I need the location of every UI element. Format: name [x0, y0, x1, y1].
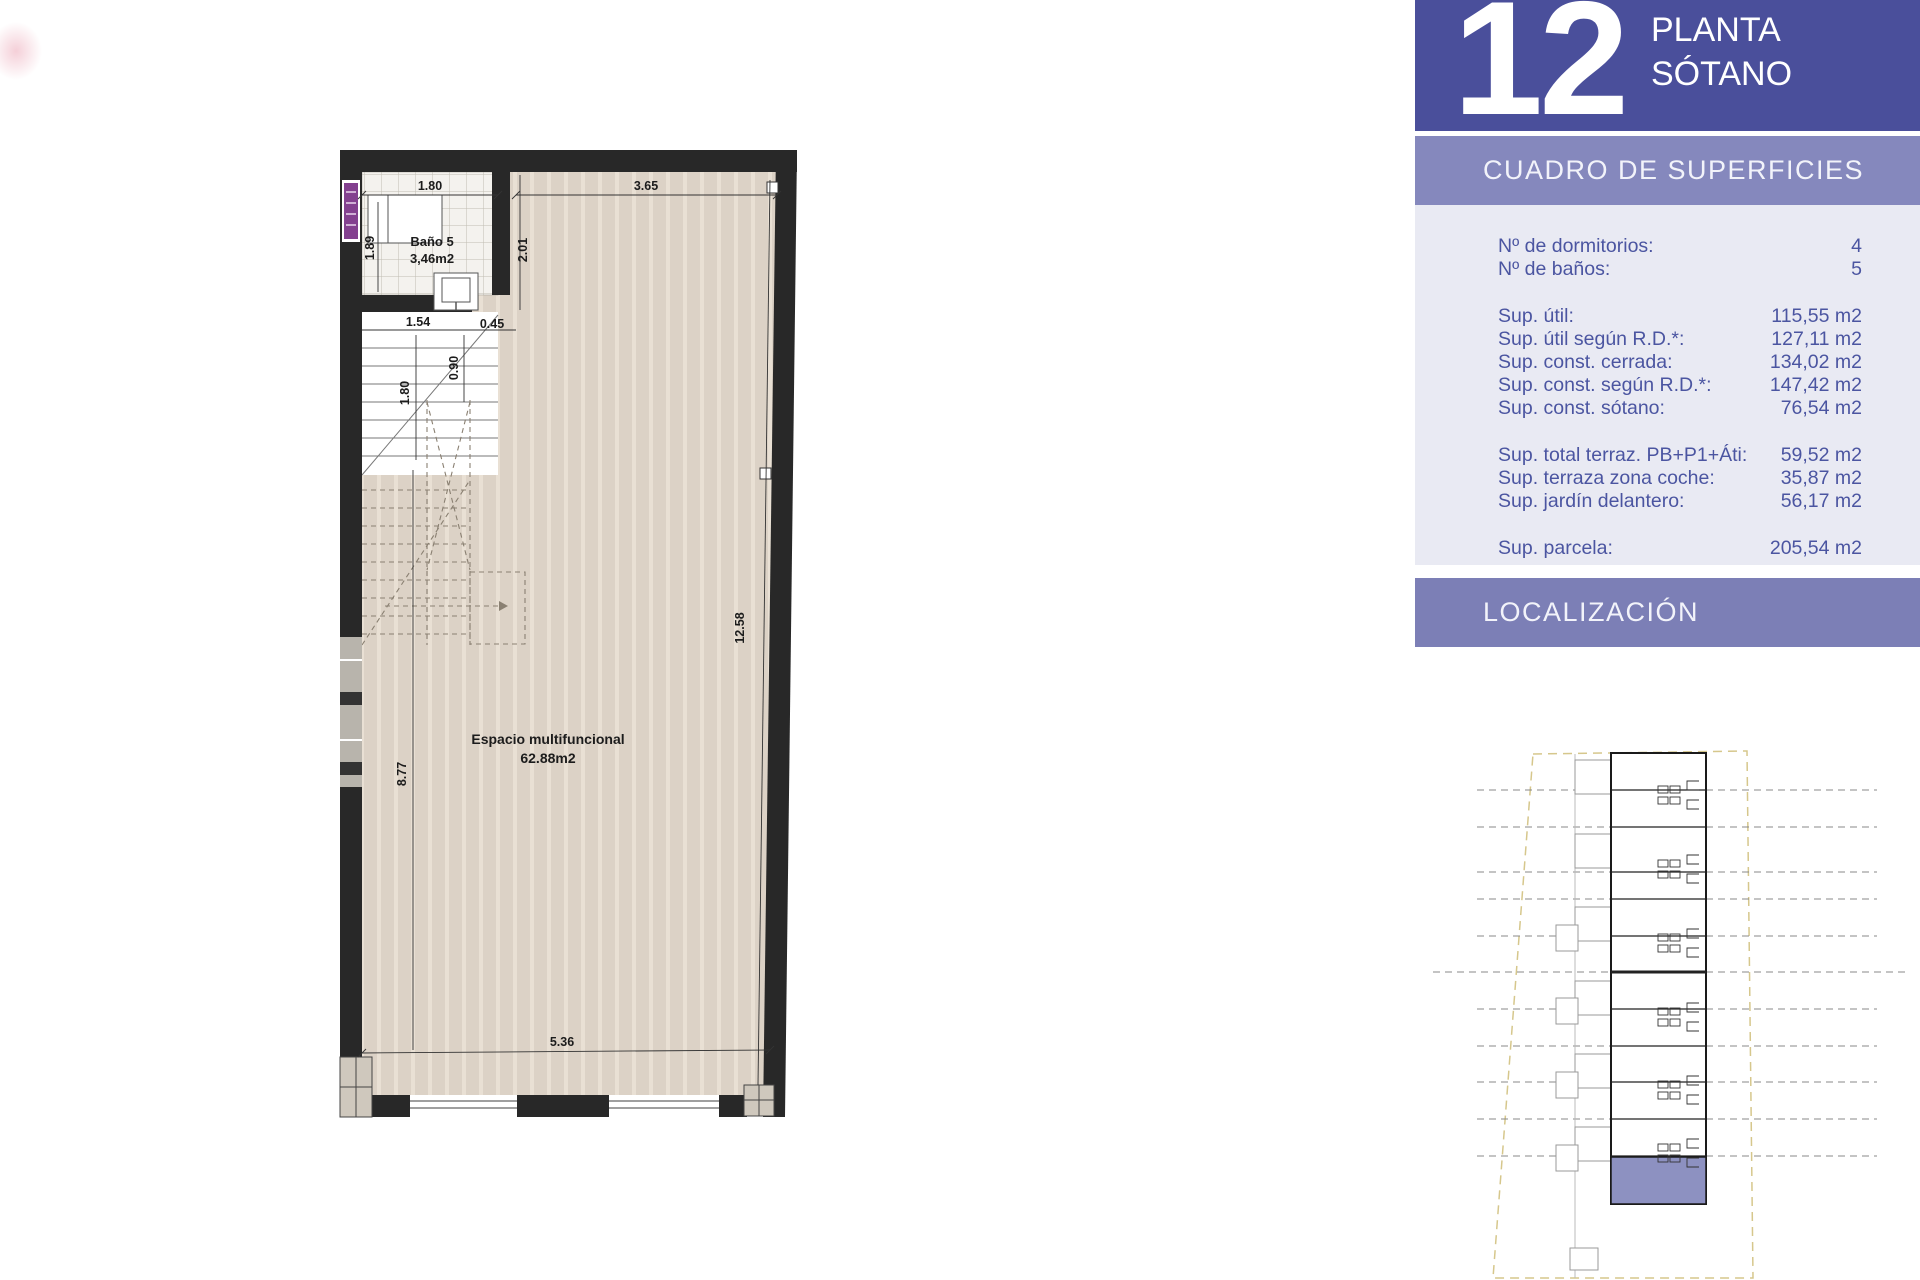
floor-name-line1: PLANTA [1651, 8, 1792, 52]
location-diagram [1415, 648, 1920, 1280]
table-row: Sup. parcela: 205,54 m2 [1498, 537, 1862, 560]
row-label: Sup. terraza zona coche: [1498, 467, 1715, 490]
table-row: Sup. terraza zona coche: 35,87 m2 [1498, 467, 1862, 490]
bathroom-area: 3,46m2 [410, 251, 454, 266]
row-label: Nº de baños: [1498, 258, 1610, 281]
porch-outlines [1556, 754, 1611, 1278]
dim-below-bath-right: 0.45 [480, 317, 504, 331]
localization-title: LOCALIZACIÓN [1483, 597, 1699, 628]
dim-stair-width: 0.90 [447, 356, 461, 380]
row-label: Sup. const. según R.D.*: [1498, 374, 1712, 397]
bathroom-name: Baño 5 [410, 234, 453, 249]
row-label: Sup. total terraz. PB+P1+Áti: [1498, 444, 1747, 467]
row-value: 134,02 m2 [1770, 351, 1862, 374]
row-label: Sup. const. cerrada: [1498, 351, 1673, 374]
highlighted-unit [1611, 1157, 1706, 1204]
table-row: Sup. const. cerrada: 134,02 m2 [1498, 351, 1862, 374]
surfaces-title: CUADRO DE SUPERFICIES [1483, 155, 1864, 186]
row-label: Sup. parcela: [1498, 537, 1613, 560]
row-label: Sup. útil según R.D.*: [1498, 328, 1684, 351]
row-value: 76,54 m2 [1781, 397, 1862, 420]
row-label: Sup. const. sótano: [1498, 397, 1665, 420]
row-value: 59,52 m2 [1781, 444, 1862, 467]
row-value: 205,54 m2 [1770, 537, 1862, 560]
door-marker [342, 180, 360, 242]
dim-left-height: 8.77 [395, 762, 409, 786]
row-value: 4 [1851, 235, 1862, 258]
localization-title-band: LOCALIZACIÓN [1415, 578, 1920, 647]
table-row: Nº de dormitorios: 4 [1498, 235, 1862, 258]
dim-top-left: 1.80 [418, 179, 442, 193]
unit-number: 12 [1453, 0, 1625, 152]
dim-bath-right: 2.01 [516, 238, 530, 262]
dim-bottom-width: 5.36 [550, 1035, 574, 1049]
row-label: Sup. útil: [1498, 305, 1574, 328]
dim-top-right: 3.65 [634, 179, 658, 193]
dim-stair-left: 1.80 [398, 381, 412, 405]
unit-header: 12 PLANTA SÓTANO [1415, 0, 1920, 131]
building-block [1611, 753, 1706, 1204]
floor-name-line2: SÓTANO [1651, 52, 1792, 96]
row-value: 115,55 m2 [1771, 305, 1862, 328]
table-row: Sup. útil: 115,55 m2 [1498, 305, 1862, 328]
table-row: Sup. jardín delantero: 56,17 m2 [1498, 490, 1862, 513]
row-value: 35,87 m2 [1781, 467, 1862, 490]
table-row: Sup. const. según R.D.*: 147,42 m2 [1498, 374, 1862, 397]
surfaces-table: Nº de dormitorios: 4 Nº de baños: 5 Sup.… [1415, 205, 1920, 565]
left-wall-opening [340, 637, 362, 787]
surfaces-title-band: CUADRO DE SUPERFICIES [1415, 136, 1920, 205]
scan-smudge [0, 22, 42, 80]
row-value: 147,42 m2 [1770, 374, 1862, 397]
table-row: Nº de baños: 5 [1498, 258, 1862, 281]
table-row: Sup. total terraz. PB+P1+Áti: 59,52 m2 [1498, 444, 1862, 467]
dim-right-height: 12.58 [733, 612, 747, 643]
table-row: Sup. útil según R.D.*: 127,11 m2 [1498, 328, 1862, 351]
main-room-area: 62.88m2 [520, 750, 575, 766]
row-value: 127,11 m2 [1771, 328, 1862, 351]
main-room-name: Espacio multifuncional [471, 731, 624, 747]
floor-plan-drawing: 1.80 3.65 1.89 2.01 1.54 0.45 0.90 1.80 … [330, 140, 810, 1130]
floor-name: PLANTA SÓTANO [1651, 8, 1792, 96]
row-label: Sup. jardín delantero: [1498, 490, 1684, 513]
dim-bath-left: 1.89 [363, 236, 377, 260]
page: 1.80 3.65 1.89 2.01 1.54 0.45 0.90 1.80 … [0, 0, 1920, 1280]
row-label: Nº de dormitorios: [1498, 235, 1654, 258]
dim-below-bath-left: 1.54 [406, 315, 430, 329]
table-row: Sup. const. sótano: 76,54 m2 [1498, 397, 1862, 420]
row-value: 5 [1851, 258, 1862, 281]
row-value: 56,17 m2 [1781, 490, 1862, 513]
